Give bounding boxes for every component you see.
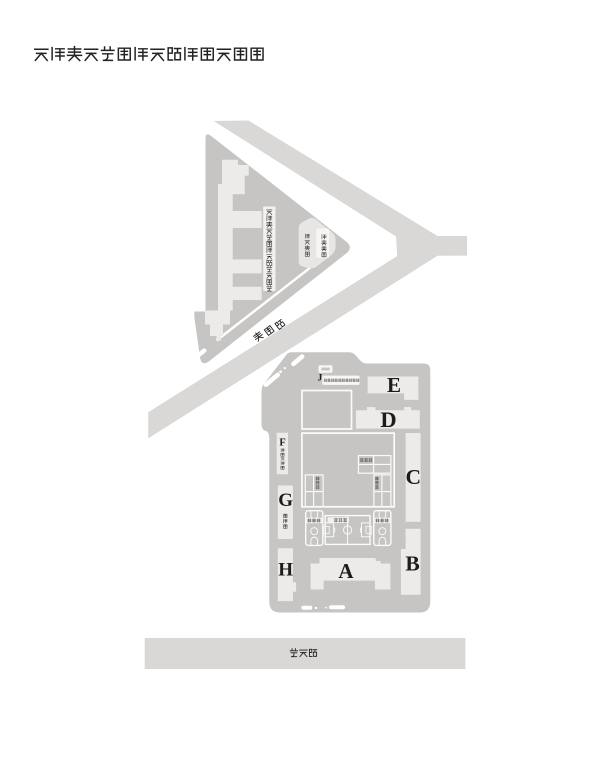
svg-text:F: F xyxy=(279,438,285,449)
svg-text:B: B xyxy=(405,552,419,576)
svg-text:A: A xyxy=(338,559,354,583)
svg-text:G: G xyxy=(278,490,293,511)
svg-text:D: D xyxy=(380,407,396,432)
svg-text:C: C xyxy=(406,465,422,489)
svg-text:E: E xyxy=(387,373,401,397)
svg-text:H: H xyxy=(278,560,293,581)
svg-text:J: J xyxy=(318,373,323,383)
